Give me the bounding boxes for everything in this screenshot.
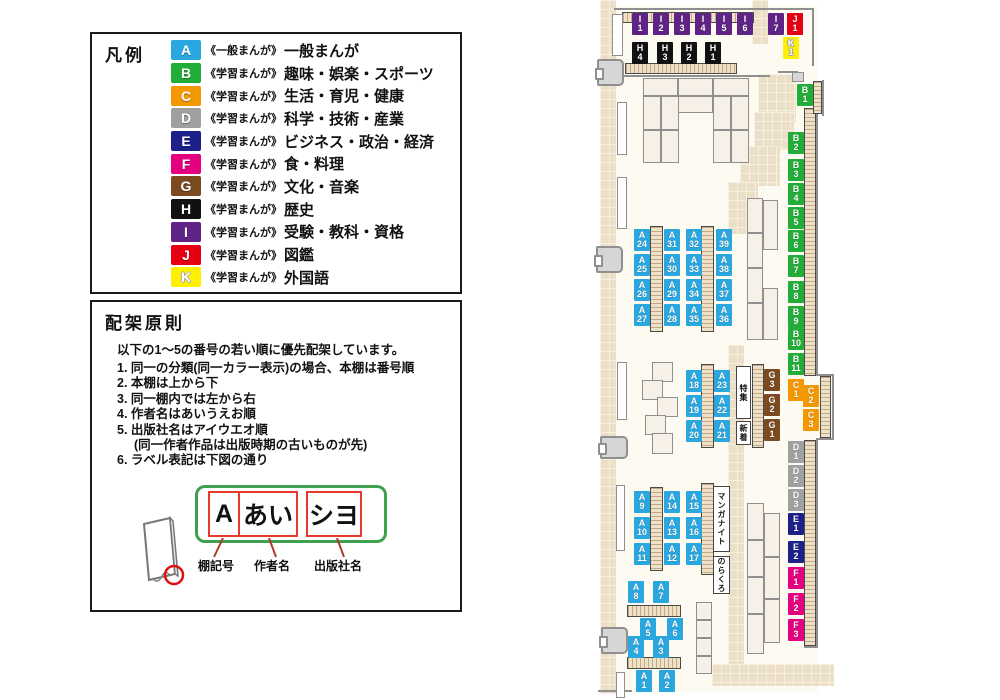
shelf-label-a11: A11 xyxy=(634,543,650,565)
shelf-label-a31: A31 xyxy=(664,229,680,251)
shelf-label-a36: A36 xyxy=(716,304,732,326)
shelf-label-f3: F3 xyxy=(788,619,804,641)
shelf-label-i5: I5 xyxy=(716,13,732,35)
shelf-label-d3: D3 xyxy=(788,489,804,511)
map-text-tokushu: 特集 xyxy=(736,366,751,419)
shelf-label-a18: A18 xyxy=(686,370,702,392)
shelf-label-a33: A33 xyxy=(686,254,702,276)
shelf-label-i2: I2 xyxy=(653,13,669,35)
shelf-label-a7: A7 xyxy=(653,581,669,603)
shelf-label-b11: B11 xyxy=(788,353,804,375)
shelf-label-a26: A26 xyxy=(634,279,650,301)
shelf-label-b7: B7 xyxy=(788,255,804,277)
shelf-label-b2: B2 xyxy=(788,132,804,154)
shelf-label-b9: B9 xyxy=(788,306,804,328)
shelf-label-b8: B8 xyxy=(788,281,804,303)
shelf-label-a13: A13 xyxy=(664,517,680,539)
shelf-label-a24: A24 xyxy=(634,229,650,251)
shelf-label-a25: A25 xyxy=(634,254,650,276)
shelf-label-a19: A19 xyxy=(686,395,702,417)
map-text-norakuro: のらくろ xyxy=(713,556,730,594)
shelf-label-b4: B4 xyxy=(788,183,804,205)
shelf-label-c1: C1 xyxy=(788,379,804,401)
shelf-label-h3: H3 xyxy=(657,42,673,64)
shelf-label-a29: A29 xyxy=(664,279,680,301)
shelf-label-a22: A22 xyxy=(714,395,730,417)
shelf-label-c3: C3 xyxy=(803,409,819,431)
shelf-label-g1: G1 xyxy=(764,419,780,441)
map-text-manga-night: マンガナイト xyxy=(713,486,730,552)
shelf-label-a27: A27 xyxy=(634,304,650,326)
shelf-label-a20: A20 xyxy=(686,420,702,442)
shelf-label-g2: G2 xyxy=(764,394,780,416)
shelf-label-a4: A4 xyxy=(628,636,644,658)
shelf-label-a14: A14 xyxy=(664,491,680,513)
map-text-shinchaku: 新着 xyxy=(736,421,751,445)
shelf-label-c2: C2 xyxy=(803,385,819,407)
shelf-label-b1: B1 xyxy=(797,84,813,106)
shelf-label-a37: A37 xyxy=(716,279,732,301)
shelf-label-a17: A17 xyxy=(686,543,702,565)
shelf-label-b5: B5 xyxy=(788,207,804,229)
shelf-label-f2: F2 xyxy=(788,593,804,615)
shelf-label-a34: A34 xyxy=(686,279,702,301)
shelf-label-f1: F1 xyxy=(788,567,804,589)
shelf-label-a32: A32 xyxy=(686,229,702,251)
shelf-label-a16: A16 xyxy=(686,517,702,539)
shelf-label-a2: A2 xyxy=(659,670,675,692)
shelf-label-b3: B3 xyxy=(788,159,804,181)
shelf-label-a8: A8 xyxy=(628,581,644,603)
shelf-label-a15: A15 xyxy=(686,491,702,513)
shelf-label-a12: A12 xyxy=(664,543,680,565)
shelf-label-a30: A30 xyxy=(664,254,680,276)
shelf-label-h2: H2 xyxy=(681,42,697,64)
shelf-label-a23: A23 xyxy=(714,370,730,392)
shelf-label-a6: A6 xyxy=(667,618,683,640)
shelf-label-a39: A39 xyxy=(716,229,732,251)
shelf-label-d2: D2 xyxy=(788,465,804,487)
shelf-label-j1: J1 xyxy=(787,13,803,35)
shelf-label-k1: K1 xyxy=(783,37,799,59)
shelf-label-a3: A3 xyxy=(653,636,669,658)
shelf-label-a21: A21 xyxy=(714,420,730,442)
shelf-label-b6: B6 xyxy=(788,230,804,252)
shelf-label-a9: A9 xyxy=(634,491,650,513)
shelf-label-i6: I6 xyxy=(737,13,753,35)
shelf-label-h1: H1 xyxy=(705,42,721,64)
shelf-label-a10: A10 xyxy=(634,517,650,539)
shelf-label-a38: A38 xyxy=(716,254,732,276)
shelf-label-a35: A35 xyxy=(686,304,702,326)
shelf-label-a1: A1 xyxy=(636,670,652,692)
map-labels-layer: I1I2I3I4I5I6I7J1K1H4H3H2H1B1B2B3B4B5B6B7… xyxy=(0,0,1000,700)
shelf-label-h4: H4 xyxy=(632,42,648,64)
shelf-label-e1: E1 xyxy=(788,513,804,535)
shelf-label-e2: E2 xyxy=(788,541,804,563)
shelf-label-d1: D1 xyxy=(788,441,804,463)
floor-map: I1I2I3I4I5I6I7J1K1H4H3H2H1B1B2B3B4B5B6B7… xyxy=(0,0,1000,700)
shelf-label-i3: I3 xyxy=(674,13,690,35)
shelf-label-i4: I4 xyxy=(695,13,711,35)
shelf-label-i1: I1 xyxy=(632,13,648,35)
shelf-label-g3: G3 xyxy=(764,369,780,391)
shelf-label-i7: I7 xyxy=(768,13,784,35)
shelf-label-b10: B10 xyxy=(788,328,804,350)
shelf-label-a28: A28 xyxy=(664,304,680,326)
